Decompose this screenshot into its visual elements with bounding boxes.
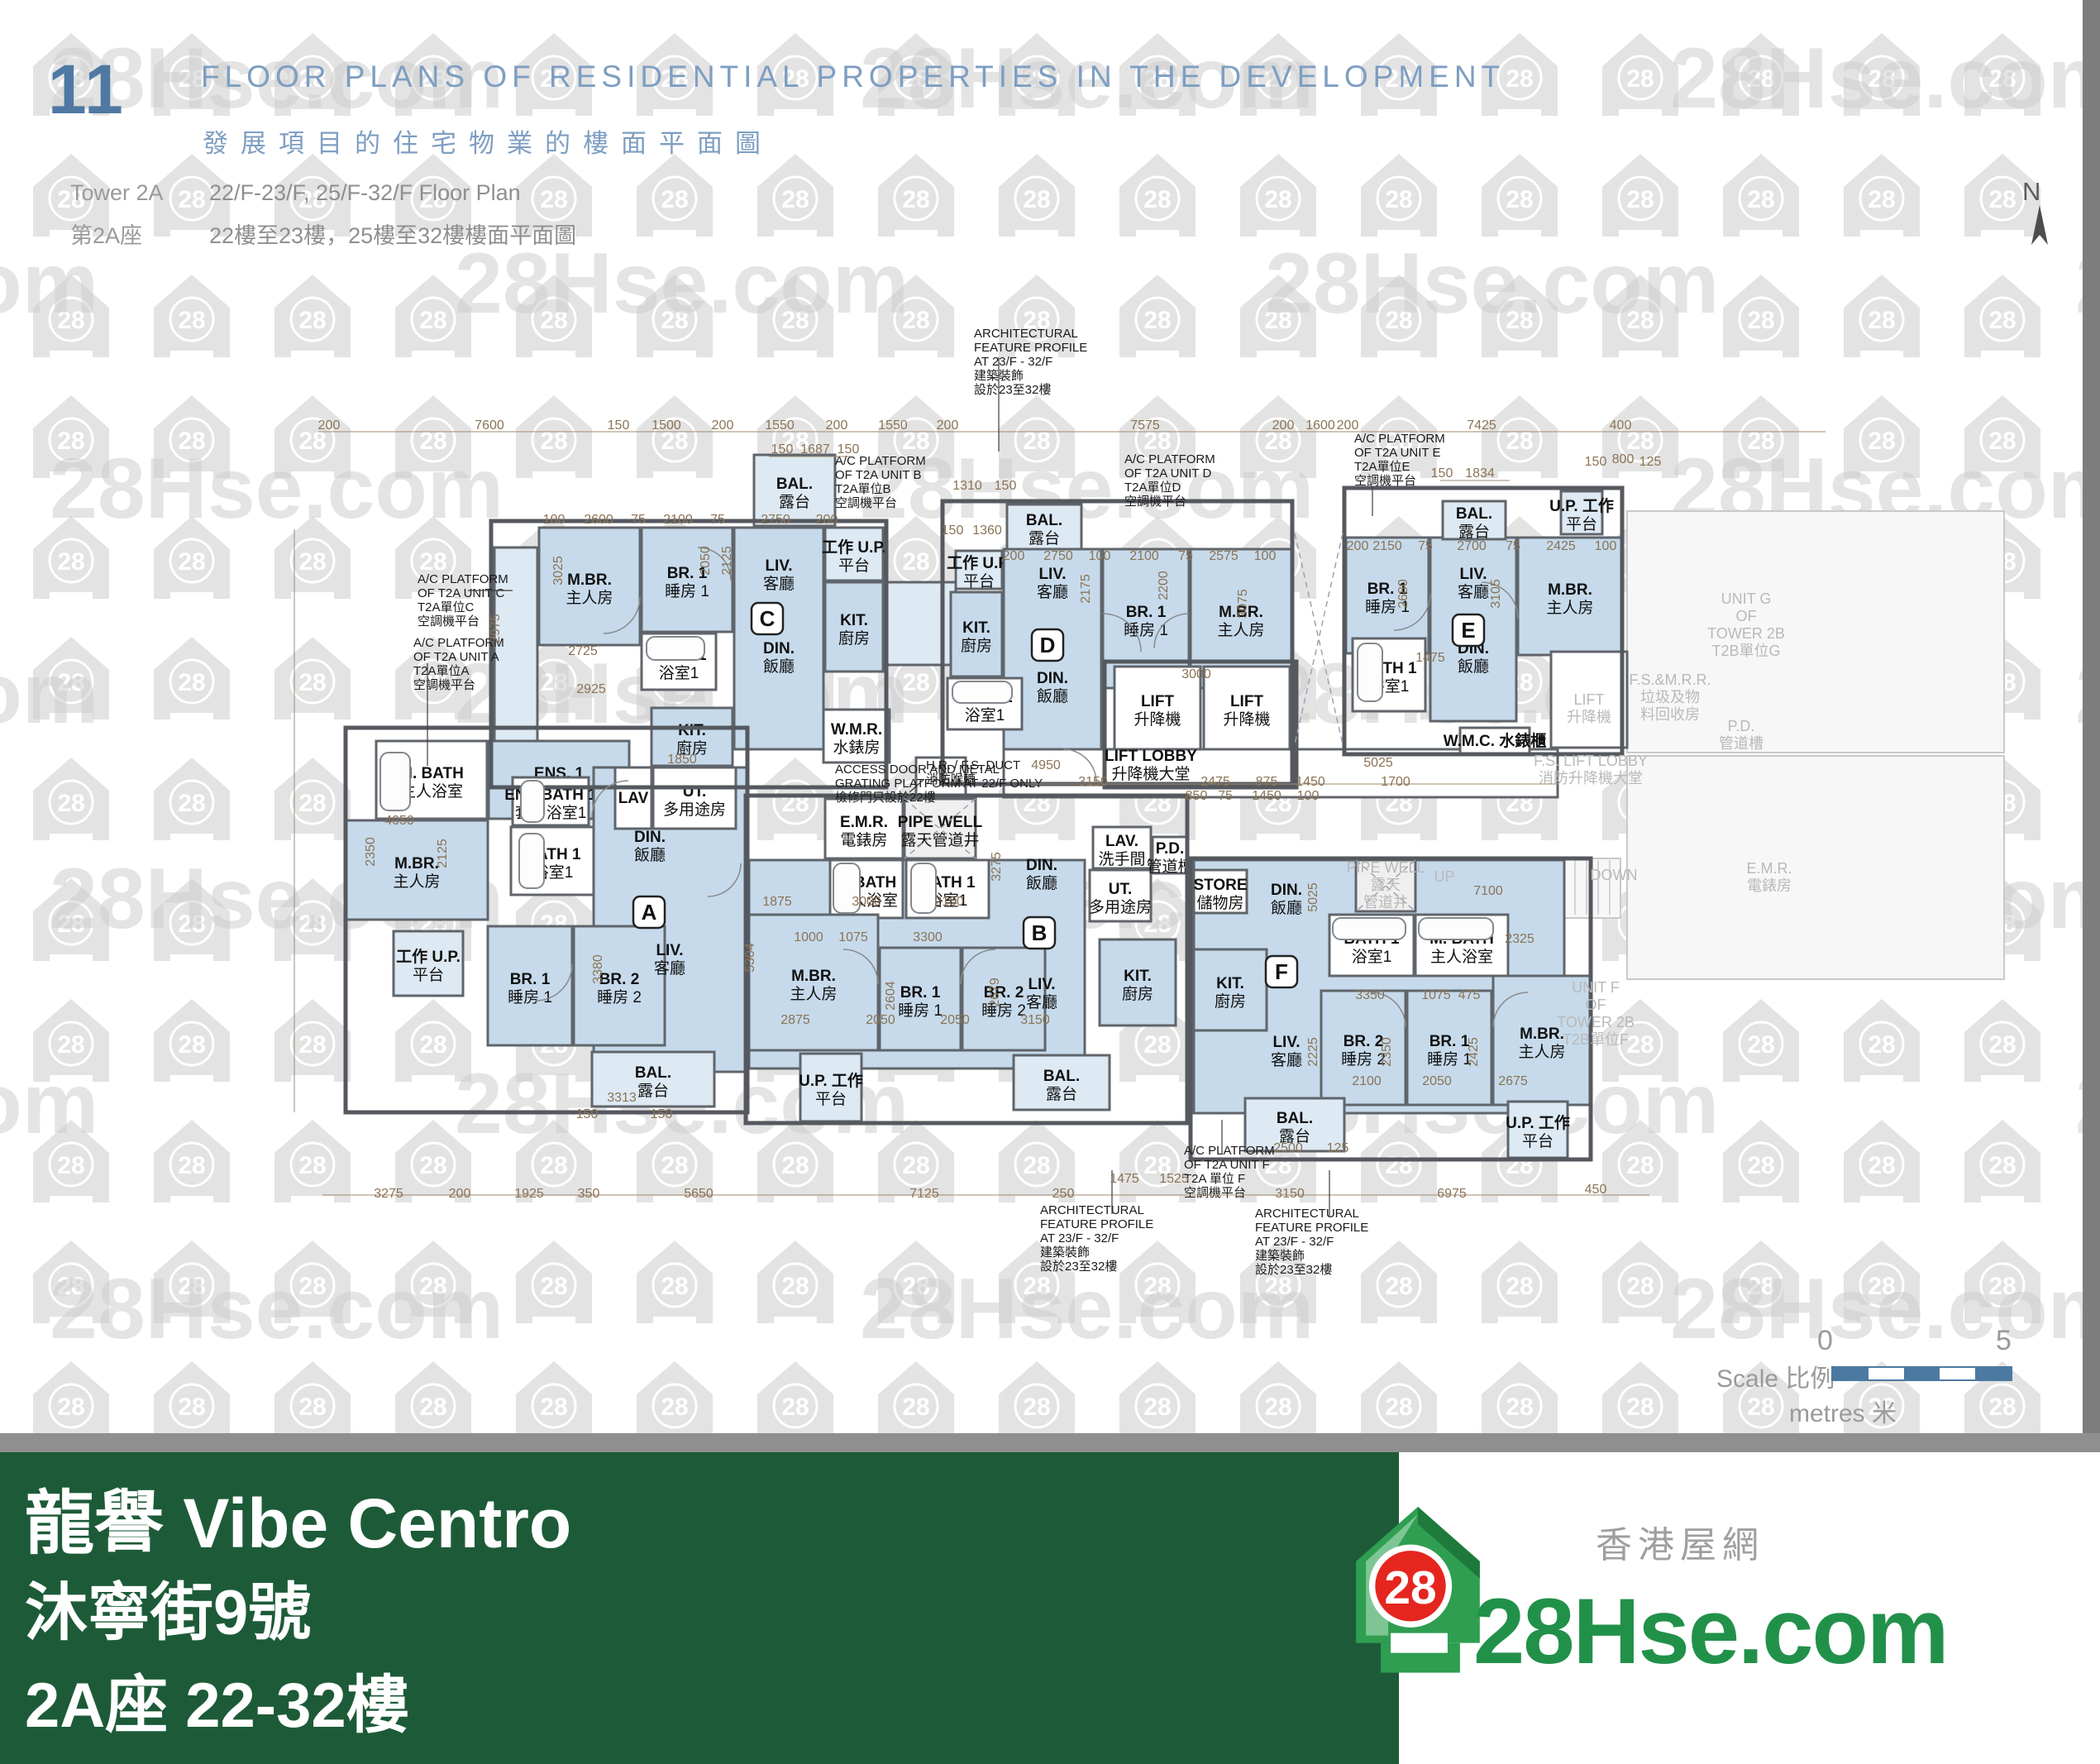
dimension-text: 150 [1431, 466, 1453, 480]
dimension-text: 2700 [1457, 539, 1487, 553]
svg-text:客廳: 客廳 [1458, 583, 1489, 601]
svg-text:設於23至32樓: 設於23至32樓 [974, 383, 1051, 397]
svg-text:飯廳: 飯廳 [634, 846, 666, 864]
room: U.P. 工作平台 [1549, 491, 1614, 534]
svg-text:升降機大堂: 升降機大堂 [1111, 765, 1190, 783]
room: BAL.露台 [1007, 504, 1081, 549]
dimension-text: 3075 [1236, 589, 1250, 619]
dimension-text: 2125 [436, 839, 450, 868]
room-label-zh: 平台 [815, 1090, 847, 1108]
dimension-text: 1500 [651, 418, 681, 433]
room-label-zh: 浴室1 [1352, 948, 1392, 966]
dimension-text: 875 [1256, 775, 1278, 789]
area-label: DIN.飯廳 [1037, 670, 1068, 705]
room: BR. 1睡房 1 [642, 528, 733, 632]
dimension-text: 1360 [972, 523, 1002, 538]
dimension-text: 800 [1612, 452, 1635, 466]
dimension-text: 450 [1585, 1183, 1607, 1197]
svg-text:檢修門只設於22樓: 檢修門只設於22樓 [835, 791, 936, 805]
svg-text:料回收房: 料回收房 [1640, 706, 1700, 723]
room-label-en: U.P. 工作 [799, 1071, 863, 1090]
svg-text:LIV.: LIV. [1038, 566, 1066, 583]
svg-text:飯廳: 飯廳 [1458, 657, 1489, 676]
svg-text:DIN.: DIN. [1037, 670, 1068, 687]
dimension-text: 1450 [1252, 789, 1281, 803]
svg-text:AT 23/F - 32/F: AT 23/F - 32/F [1255, 1235, 1334, 1249]
room: KIT.廚房 [1100, 939, 1176, 1025]
dimension-text: 2225 [1306, 1037, 1320, 1067]
room: KIT.廚房 [1194, 949, 1267, 1030]
dimension-text: 2050 [1422, 1074, 1452, 1088]
room-label-en: KIT. [840, 612, 868, 629]
room-label-zh: 廚房 [961, 636, 992, 655]
dimension-text: 200 [937, 418, 959, 433]
room-label-zh: 睡房 1 [1427, 1050, 1472, 1068]
page-edge-strip [2083, 0, 2100, 1434]
room-label-zh: 水錶房 [833, 739, 880, 757]
dimension-text: 200 [1272, 418, 1295, 433]
room: LAV [615, 767, 651, 829]
room-label-zh: 浴室1 [965, 706, 1005, 724]
dimension-text: 1475 [1110, 1172, 1139, 1186]
svg-text:TOWER 2B: TOWER 2B [1707, 625, 1785, 642]
dimension-text: 1550 [765, 418, 795, 433]
svg-text:管道槽: 管道槽 [1719, 735, 1764, 752]
dimension-text: 1925 [514, 1187, 544, 1201]
room: U.P. 工作平台 [1506, 1102, 1570, 1158]
room-label-en: KIT. [1216, 975, 1244, 992]
dimension-text: 2425 [1467, 1037, 1481, 1067]
svg-text:OF T2A UNIT A: OF T2A UNIT A [413, 650, 499, 664]
svg-text:FEATURE PROFILE: FEATURE PROFILE [974, 341, 1087, 355]
room-label-en: BR. 1 [900, 984, 941, 1002]
dimension-text: 200 [712, 418, 734, 433]
svg-text:OF T2A UNIT F: OF T2A UNIT F [1184, 1158, 1270, 1172]
dimension-text: 3350 [1355, 988, 1385, 1002]
svg-text:E.M.R.: E.M.R. [1746, 860, 1792, 877]
dimension-text: 75 [1418, 539, 1433, 553]
room-label-en: BR. 1 [1429, 1033, 1470, 1050]
room: PIPE WELL露天管道井 [898, 799, 983, 858]
plan-note: A/C PLATFORMOF T2A UNIT FT2A 單位 F空調機平台 [1184, 1144, 1275, 1200]
dimension-text: 200 [1003, 549, 1025, 563]
dimension-text: 2500 [1273, 1141, 1303, 1155]
room-label-en: LIFT [1230, 693, 1263, 710]
svg-text:客廳: 客廳 [654, 959, 685, 978]
tower2b-label: F.S.&M.R.R.垃圾及物料回收房 [1629, 672, 1711, 723]
svg-text:PIPE WELL: PIPE WELL [1346, 859, 1425, 876]
svg-text:設於23至32樓: 設於23至32樓 [1255, 1263, 1332, 1277]
dimension-text: 2475 [1200, 775, 1230, 789]
dimension-text: 2350 [1380, 1037, 1394, 1067]
dimension-text: 1075 [1421, 988, 1451, 1002]
svg-text:F.S. LIFT LOBBY: F.S. LIFT LOBBY [1534, 753, 1648, 769]
dimension-text: 4050 [384, 814, 414, 828]
dimension-text: 1834 [1465, 466, 1495, 480]
dimension-text: 3313 [607, 1091, 637, 1105]
svg-text:客廳: 客廳 [1026, 993, 1057, 1011]
dimension-text: 2050 [699, 546, 713, 576]
dimension-text: 250 [1052, 1187, 1075, 1201]
dimension-text: 5650 [684, 1187, 714, 1201]
room-label-en: M.BR. [567, 571, 612, 589]
area-label: LIV.客廳 [1458, 566, 1489, 601]
unit-badge-letter: A [642, 900, 657, 925]
dimension-text: 150 [942, 523, 964, 538]
dimension-text: 7125 [909, 1187, 939, 1201]
project-name: 龍譽 Vibe Centro [25, 1468, 571, 1568]
dimension-text: 1475 [1415, 651, 1445, 665]
svg-text:ARCHITECTURAL: ARCHITECTURAL [1255, 1207, 1359, 1221]
room-label-en: E.M.R. [840, 814, 888, 831]
svg-text:DIN.: DIN. [763, 640, 795, 657]
room-label-zh: 浴室1 [659, 664, 699, 682]
dimension-text: 2050 [940, 1013, 970, 1027]
bath-fixture [521, 781, 544, 822]
bath-fixture [1358, 643, 1382, 701]
svg-text:LIV.: LIV. [656, 942, 683, 959]
dimension-text: 2679 [988, 978, 1002, 1007]
dimension-text: 100 [1089, 549, 1111, 563]
plan-note: ARCHITECTURALFEATURE PROFILEAT 23/F - 32… [974, 327, 1087, 397]
dimension-text: 150 [576, 1107, 599, 1121]
dimension-text: 200 [1337, 418, 1359, 433]
room-label-en: 工作 U.P. [947, 553, 1011, 572]
scale-bar-segment [1904, 1368, 1940, 1379]
room-label-zh: 睡房 1 [508, 988, 552, 1006]
room-label-en: 工作 U.P. [822, 538, 886, 557]
dimension-text: 2425 [1546, 539, 1576, 553]
room-label-en: KIT. [678, 722, 706, 739]
svg-text:客廳: 客廳 [763, 575, 795, 593]
plan-note: ARCHITECTURALFEATURE PROFILEAT 23/F - 32… [1040, 1203, 1153, 1274]
tower2b-label: E.M.R.電錶房 [1746, 860, 1792, 894]
room-label-zh: 露台 [1046, 1085, 1077, 1103]
dimension-text: 7600 [475, 418, 504, 433]
room-label-zh: 主人房 [1518, 1043, 1565, 1061]
dimension-text: 75 [1506, 539, 1520, 553]
room-label-zh: 露台 [637, 1082, 669, 1100]
dimension-text: 5025 [1306, 882, 1320, 912]
dimension-text: 2925 [576, 682, 606, 696]
room-label-en: BAL. [1026, 512, 1062, 529]
unit-badge-letter: E [1461, 618, 1475, 643]
svg-text:OF: OF [1586, 997, 1606, 1013]
dimension-text: 3105 [1489, 579, 1503, 609]
svg-text:LIFT LOBBY: LIFT LOBBY [1105, 748, 1197, 765]
svg-text:飯廳: 飯廳 [763, 657, 795, 676]
svg-text:飯廳: 飯廳 [1026, 874, 1057, 892]
room-label-en: KIT. [962, 619, 990, 637]
dimension-text: 2675 [1498, 1074, 1528, 1088]
dimension-text: 75 [710, 513, 725, 527]
dimension-text: 1000 [794, 930, 823, 944]
svg-text:建築裝飾: 建築裝飾 [1255, 1248, 1305, 1263]
room-label-en: LAV [618, 790, 649, 807]
dimension-text: 2600 [584, 513, 613, 527]
room-label-en: PIPE WELL [898, 814, 983, 831]
room: 工作 U.P.平台 [947, 551, 1011, 590]
svg-text:A/C PLATFORM: A/C PLATFORM [1354, 432, 1445, 446]
room-label-en: BAL. [776, 476, 813, 493]
dimension-text: 475 [1458, 988, 1481, 1002]
room [885, 582, 956, 665]
svg-text:空調機平台: 空調機平台 [1124, 495, 1186, 509]
room-label-zh: 廚房 [1215, 992, 1246, 1011]
plan-note: ARCHITECTURALFEATURE PROFILEAT 23/F - 32… [1255, 1207, 1368, 1277]
bath-fixture [380, 753, 410, 810]
dimension-text: 2575 [1209, 549, 1239, 563]
room: BAL.露台 [1443, 501, 1506, 541]
dimension-text: 150 [651, 1107, 673, 1121]
area-label: DIN.飯廳 [1271, 882, 1302, 917]
room-label-en: M.BR. [791, 968, 836, 985]
room-label-zh: 露台 [1458, 523, 1490, 541]
svg-text:LIFT: LIFT [1573, 691, 1604, 708]
unit-badge: B [1024, 917, 1055, 949]
dimension-text: 2725 [568, 644, 598, 658]
project-tower-floors: 2A座 22-32樓 [25, 1654, 409, 1745]
bath-fixture [952, 681, 1012, 703]
room-label-zh: 主人浴室 [1430, 948, 1493, 966]
svg-text:LIV.: LIV. [1459, 566, 1487, 583]
unit-badge-letter: B [1032, 920, 1048, 945]
dimension-text: 1687 [800, 442, 830, 457]
room-label-en: U.P. 工作 [1506, 1113, 1570, 1132]
room-label-zh: 露台 [779, 493, 810, 511]
dimension-text: 350 [578, 1187, 600, 1201]
scale-unit: metres 米 [1789, 1393, 1897, 1429]
dimension-text: 2175 [1079, 574, 1093, 604]
svg-text:DIN.: DIN. [634, 829, 666, 846]
room-label-zh: 睡房 1 [665, 582, 709, 600]
dimension-text: 2100 [934, 895, 964, 909]
room-label-zh: 平台 [838, 557, 870, 575]
room-label-zh: 睡房 1 [1124, 621, 1168, 639]
dimension-text: 2750 [1043, 549, 1073, 563]
room: E.M.R.電錶房 [825, 799, 903, 858]
tower2b-label: F.S. LIFT LOBBY消防升降機大堂 [1534, 753, 1648, 786]
room: KIT.廚房 [951, 592, 1002, 676]
dimension-text: 5025 [1363, 756, 1393, 770]
svg-text:T2B單位F: T2B單位F [1563, 1031, 1629, 1048]
svg-text:T2A單位C: T2A單位C [418, 600, 475, 614]
dimension-text: 5304 [743, 943, 757, 973]
room-label-zh: 洗手間 [1098, 850, 1145, 868]
room-label-en: 工作 U.P. [396, 947, 461, 966]
28hse-logo-house-icon[interactable]: 28 [1356, 1507, 1480, 1701]
unit-badge-letter: F [1275, 959, 1288, 984]
dimension-text: 4950 [1031, 758, 1061, 772]
room-label-en: W.M.C. 水錶櫃 [1444, 731, 1547, 750]
svg-text:T2A單位A: T2A單位A [413, 664, 470, 678]
svg-text:空調機平台: 空調機平台 [413, 678, 475, 692]
room-label-en: BAL. [1277, 1110, 1313, 1127]
footer-divider-band [0, 1433, 2100, 1452]
room-label-zh: 睡房 1 [898, 1002, 943, 1020]
svg-text:空調機平台: 空調機平台 [1354, 474, 1416, 488]
svg-text:空調機平台: 空調機平台 [1184, 1186, 1246, 1200]
dimension-text: 850 [1186, 789, 1208, 803]
area-label: DIN.飯廳 [1026, 857, 1057, 892]
tower2b-label: DOWN [1591, 867, 1638, 883]
dimension-text: 100 [1254, 549, 1277, 563]
project-address: 沐寧街9號 [25, 1561, 311, 1652]
room-label-en: BR. 2 [1344, 1033, 1384, 1050]
28hse-logo-text[interactable]: 28Hse.com [1473, 1578, 1947, 1685]
svg-text:飯廳: 飯廳 [1271, 899, 1302, 917]
svg-text:T2A 單位 F: T2A 單位 F [1184, 1172, 1245, 1186]
room: KIT.廚房 [825, 582, 883, 672]
dimension-text: 2100 [1129, 549, 1159, 563]
area-label: LIV.客廳 [1026, 976, 1057, 1011]
svg-text:空調機平台: 空調機平台 [835, 496, 897, 510]
svg-text:LIV.: LIV. [765, 557, 792, 575]
svg-text:FEATURE PROFILE: FEATURE PROFILE [1255, 1221, 1368, 1235]
svg-text:DIN.: DIN. [1271, 882, 1302, 899]
dimension-text: 1600 [1305, 418, 1335, 433]
unit-badge-letter: D [1040, 633, 1056, 657]
dimension-text: 2975 [489, 614, 503, 643]
svg-text:T2A單位D: T2A單位D [1124, 480, 1181, 495]
unit-badge: E [1453, 614, 1484, 646]
room: BR. 1睡房 1 [488, 926, 572, 1045]
room: BAL.露台 [1014, 1055, 1110, 1110]
dimension-text: 3150 [1275, 1187, 1305, 1201]
dimension-text: 150 [1585, 455, 1607, 469]
room-label-zh: 主人房 [566, 589, 613, 607]
plan-note: A/C PLATFORMOF T2A UNIT BT2A單位B空調機平台 [835, 454, 926, 510]
svg-text:空調機平台: 空調機平台 [418, 614, 480, 629]
dimension-text: 1850 [667, 753, 697, 767]
svg-text:UP: UP [1434, 868, 1454, 885]
dimension-text: 2125 [720, 546, 734, 576]
scale-five: 5 [1996, 1325, 2012, 1357]
dimension-text: 1700 [1381, 775, 1410, 789]
dimension-text: 100 [543, 513, 566, 527]
svg-text:DIN.: DIN. [1026, 857, 1057, 874]
room: BR. 2睡房 2 [574, 926, 665, 1045]
dimension-text: 150 [838, 442, 860, 457]
svg-text:ARCHITECTURAL: ARCHITECTURAL [1040, 1203, 1144, 1217]
room: LIFT升降機 [1204, 667, 1290, 749]
area-label: LIV.客廳 [1037, 566, 1068, 601]
room-label-zh: 廚房 [1122, 984, 1153, 1003]
room-label-en: STORE [1193, 877, 1247, 894]
room-label-zh: 升降機 [1134, 710, 1181, 729]
svg-text:升降機: 升降機 [1567, 709, 1611, 725]
svg-text:LIV.: LIV. [1028, 976, 1055, 993]
svg-text:消防喉轆: 消防喉轆 [926, 772, 976, 786]
dimension-text: 1310 [952, 479, 982, 493]
dimension-text: 2150 [1372, 539, 1402, 553]
room-label-zh: 儲物房 [1196, 894, 1243, 912]
svg-text:A/C PLATFORM: A/C PLATFORM [1184, 1144, 1275, 1158]
dimension-text: 7575 [1130, 418, 1160, 433]
room-label-zh: 廚房 [838, 629, 870, 648]
dimension-text: 2350 [364, 837, 378, 867]
dimension-text: 75 [1178, 549, 1193, 563]
dimension-text: 2750 [761, 513, 790, 527]
svg-text:客廳: 客廳 [1271, 1051, 1302, 1069]
area-label: DIN.飯廳 [763, 640, 795, 676]
dimension-text: 100 [1297, 789, 1320, 803]
room-label-zh: 多用途房 [663, 801, 726, 819]
svg-text:DOWN: DOWN [1591, 867, 1638, 883]
svg-text:AT 23/F - 32/F: AT 23/F - 32/F [1040, 1231, 1119, 1245]
room-label-en: BAL. [635, 1064, 671, 1082]
svg-text:OF T2A UNIT E: OF T2A UNIT E [1354, 446, 1440, 460]
svg-text:OF: OF [1736, 608, 1757, 624]
dimension-text: 75 [1218, 789, 1233, 803]
logo-badge-number: 28 [1384, 1562, 1436, 1614]
scale-zero: 0 [1817, 1325, 1833, 1357]
room-label-zh: 露台 [1029, 529, 1060, 547]
room-label-en: BAL. [1043, 1068, 1080, 1085]
room-label-zh: 平台 [963, 572, 995, 590]
dimension-text: 200 [318, 418, 341, 433]
dimension-text: 2200 [1157, 571, 1171, 600]
room-label-zh: 主人房 [393, 872, 440, 891]
dimension-text: 2604 [884, 981, 898, 1011]
bath-fixture [519, 834, 544, 888]
bath-fixture [1419, 918, 1493, 939]
svg-text:LIV.: LIV. [1272, 1034, 1300, 1051]
dimension-text: 7100 [1473, 884, 1503, 898]
dimension-text: 2875 [780, 1013, 810, 1027]
svg-text:垃圾及物: 垃圾及物 [1640, 689, 1700, 705]
dimension-text: 125 [1327, 1141, 1349, 1155]
svg-text:H.R. / F.S. DUCT: H.R. / F.S. DUCT [926, 758, 1020, 772]
room: M.BR.主人房 [346, 820, 488, 920]
svg-text:P.D.: P.D. [1728, 718, 1755, 734]
unit-badge: D [1032, 629, 1063, 661]
room-label-en: U.P. 工作 [1549, 496, 1614, 515]
dimension-text: 150 [995, 479, 1017, 493]
scale-label: Scale 比例 [1716, 1358, 1835, 1394]
room-label-zh: 主人房 [1546, 599, 1593, 617]
scale-bar-segment [1940, 1368, 1975, 1379]
dimension-text: 100 [1595, 539, 1617, 553]
room: 工作 U.P.平台 [822, 528, 886, 581]
dimension-text: 1550 [878, 418, 908, 433]
dimension-text: 3000 [852, 895, 881, 909]
room-label-zh: 平台 [413, 966, 444, 984]
svg-text:T2B單位G: T2B單位G [1711, 643, 1780, 659]
dimension-text: 1450 [1296, 775, 1325, 789]
site-name-zh: 香港屋網 [1596, 1515, 1764, 1568]
area-label: DIN.飯廳 [634, 829, 666, 864]
dimension-text: 1875 [762, 895, 792, 909]
room-label-en: M.BR. [1548, 581, 1592, 599]
room-label-en: BR. 1 [1126, 604, 1167, 621]
dimension-text: 3025 [551, 556, 566, 586]
room-label-zh: 電錶房 [840, 831, 887, 849]
svg-text:TOWER 2B: TOWER 2B [1557, 1014, 1635, 1030]
bath-fixture [647, 637, 704, 660]
room: ENS.BATH 1套房浴室1 [504, 777, 597, 825]
room-label-zh: 平台 [1566, 515, 1597, 533]
svg-text:UNIT F: UNIT F [1572, 979, 1620, 996]
room-label-zh: 多用途房 [1089, 898, 1152, 916]
room: M.BR.主人房 [1518, 538, 1622, 655]
svg-text:FEATURE PROFILE: FEATURE PROFILE [1040, 1217, 1153, 1231]
room-label-en: M.BR. [394, 855, 439, 872]
dimension-text: 150 [771, 442, 794, 457]
dimension-text: 3150 [1020, 1013, 1050, 1027]
tower2b-label: UP [1434, 868, 1454, 885]
svg-text:AT 23/F - 32/F: AT 23/F - 32/F [974, 355, 1052, 369]
